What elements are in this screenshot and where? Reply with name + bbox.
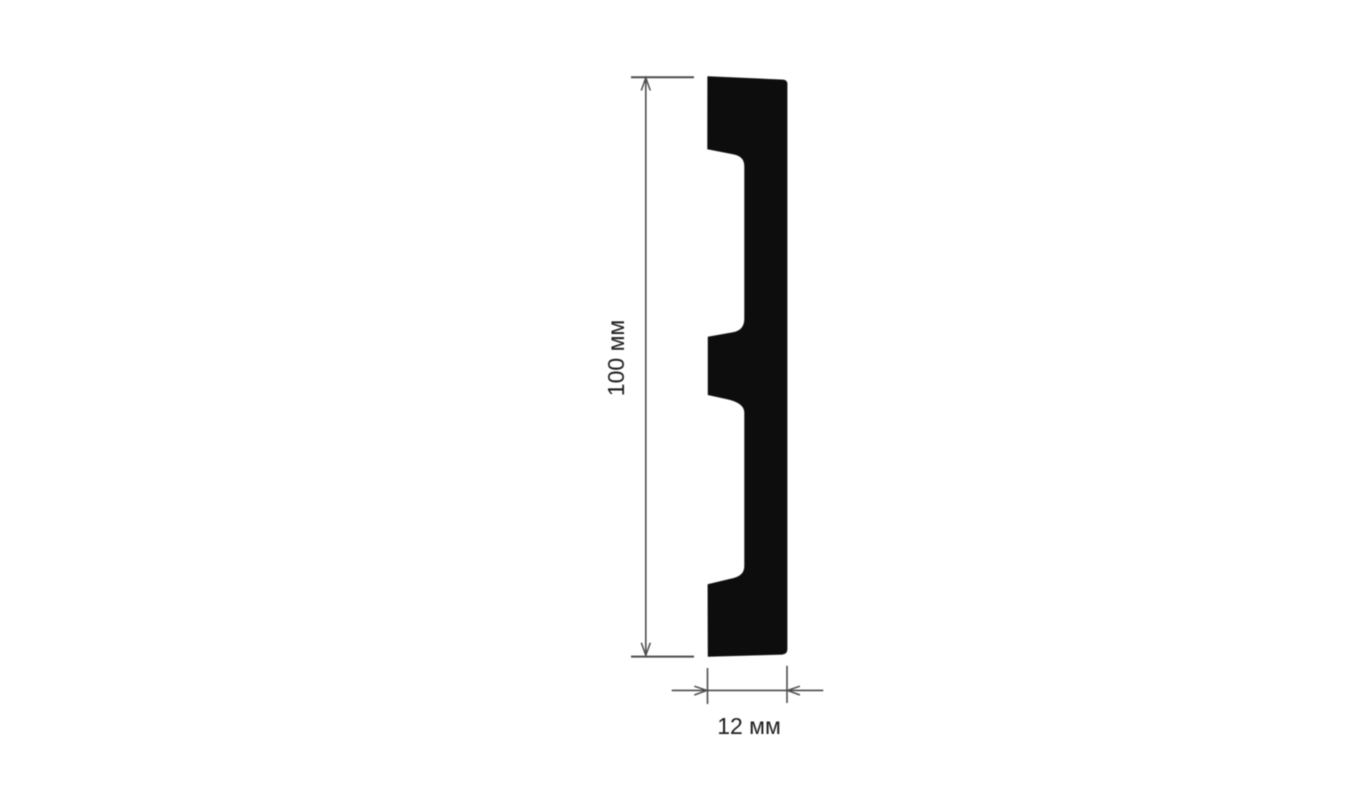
- svg-text:12 мм: 12 мм: [717, 713, 781, 739]
- svg-text:100 мм: 100 мм: [603, 320, 629, 396]
